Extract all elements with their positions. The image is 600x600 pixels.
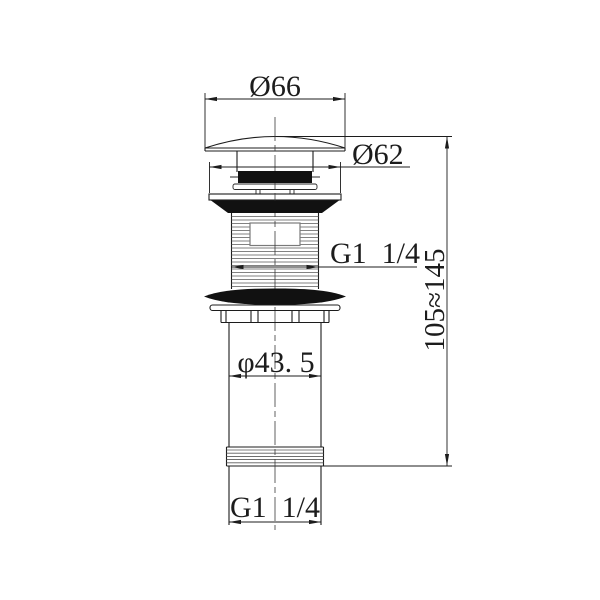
drawing-canvas: Ø66 Ø62 G1 1/4 φ43. 5 105≈145 G1 1/4 <box>0 0 600 600</box>
cap-diameter-label: Ø66 <box>249 70 301 103</box>
sealing-ring <box>204 289 346 305</box>
dim-body-diameter: φ43. 5 <box>229 346 321 379</box>
rubber-gasket <box>211 201 339 214</box>
height-range-label: 105≈145 <box>419 249 451 352</box>
technical-drawing: Ø66 Ø62 G1 1/4 φ43. 5 105≈145 G1 1/4 <box>0 0 600 600</box>
dim-flange-diameter: Ø62 <box>210 138 411 193</box>
top-thread-label: G1 1/4 <box>330 237 420 270</box>
bottom-thread-label: G1 1/4 <box>230 491 320 524</box>
seal-washer <box>230 171 320 183</box>
flange-diameter-label: Ø62 <box>352 138 404 171</box>
body-diameter-label: φ43. 5 <box>237 346 314 379</box>
dim-bottom-thread: G1 1/4 <box>229 491 321 524</box>
